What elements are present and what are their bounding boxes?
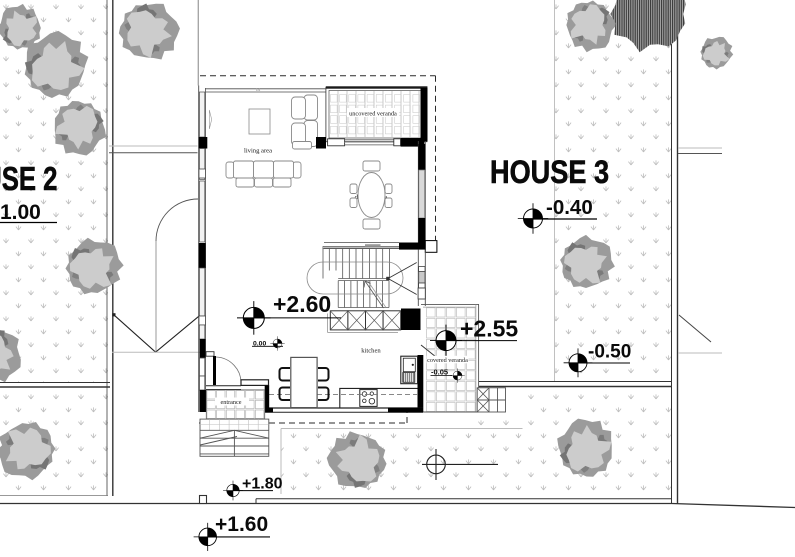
svg-text:uncovered veranda: uncovered veranda bbox=[349, 111, 397, 118]
svg-text:entrance: entrance bbox=[221, 399, 242, 406]
svg-text:+2.60: +2.60 bbox=[273, 291, 331, 317]
svg-text:-1.00: -1.00 bbox=[0, 201, 41, 224]
svg-text:living area: living area bbox=[244, 148, 272, 155]
svg-text:kitchen: kitchen bbox=[361, 348, 381, 355]
svg-text:HOUSE 2: HOUSE 2 bbox=[0, 161, 58, 198]
svg-text:+1.60: +1.60 bbox=[215, 513, 268, 536]
svg-text:+2.55: +2.55 bbox=[460, 316, 518, 342]
svg-text:-0.50: -0.50 bbox=[588, 342, 631, 363]
svg-text:-0.40: -0.40 bbox=[546, 196, 593, 219]
svg-text:HOUSE 3: HOUSE 3 bbox=[490, 155, 609, 191]
svg-text:covered veranda: covered veranda bbox=[427, 357, 468, 364]
svg-text:14: 14 bbox=[256, 87, 261, 92]
svg-text:+1.80: +1.80 bbox=[242, 476, 283, 493]
svg-text:-0.05: -0.05 bbox=[431, 367, 448, 376]
